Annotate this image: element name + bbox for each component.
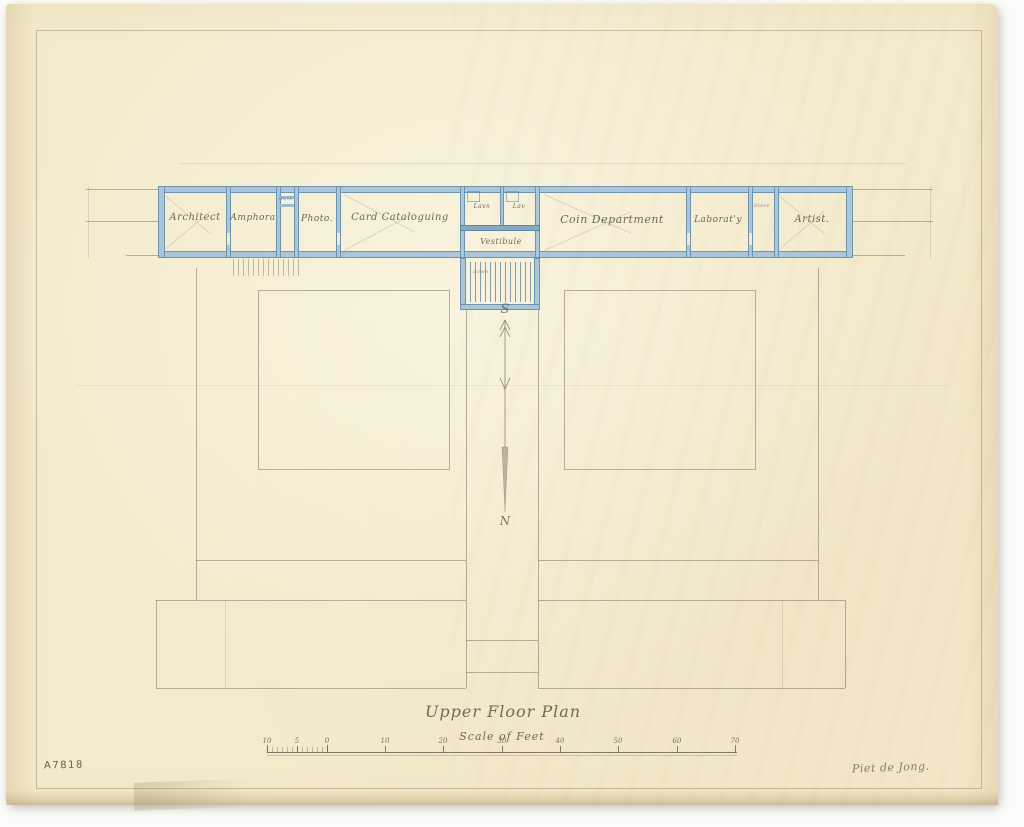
scale-tick xyxy=(267,745,268,753)
scale-tick xyxy=(443,746,444,753)
room-label-architect: Architect xyxy=(158,212,232,223)
lavatory-fixture xyxy=(467,191,480,202)
scale-tick xyxy=(560,746,561,753)
terrace-line xyxy=(225,600,226,688)
pencil-line xyxy=(86,221,158,222)
stair-hall-wall xyxy=(534,258,540,310)
door-opening xyxy=(749,233,752,245)
stair-hall-wall xyxy=(460,258,466,310)
scale-tick-label: 10 xyxy=(375,737,395,745)
scale-tick-label: 60 xyxy=(667,737,687,745)
corridor-wall-line xyxy=(466,310,467,688)
terrace-line xyxy=(845,600,846,688)
pencil-line xyxy=(126,255,158,256)
pencil-line xyxy=(180,163,906,164)
scale-tick-label: 70 xyxy=(725,737,745,745)
compass-north-label: N xyxy=(496,514,514,528)
pencil-line xyxy=(853,221,933,222)
wall-partition xyxy=(748,186,753,258)
door-opening xyxy=(687,233,690,245)
terrace-line xyxy=(156,600,157,688)
room-label-amphora: Amphora xyxy=(226,213,280,223)
scale-tick-label: 20 xyxy=(433,737,453,745)
lavatory-fixture xyxy=(506,191,519,202)
left-courtyard-outline xyxy=(258,290,450,470)
room-label-lavatory-1: Lavn xyxy=(462,203,502,210)
terrace-line xyxy=(156,600,466,601)
room-label-lavatory-2: Lav xyxy=(500,203,538,210)
compass-south-label: S xyxy=(496,302,514,317)
scale-tick xyxy=(385,746,386,753)
scale-tick xyxy=(735,745,736,753)
terrace-line xyxy=(538,688,845,689)
drawing-title: Upper Floor Plan xyxy=(403,702,603,721)
room-label-artist: Artist. xyxy=(777,214,847,225)
lavatory-wall xyxy=(460,225,540,231)
right-courtyard-outline xyxy=(564,290,756,470)
room-label-coin-department: Coin Department xyxy=(540,213,684,226)
door-opening xyxy=(337,233,340,245)
catalog-number: A7818 xyxy=(44,760,84,772)
corridor-cross-line xyxy=(466,640,538,641)
scale-tick xyxy=(618,746,619,753)
room-label-dark-room: dark xyxy=(276,196,296,202)
scale-tick-label: 5 xyxy=(287,737,307,745)
pencil-line xyxy=(88,186,89,258)
pencil-line xyxy=(853,189,933,190)
scale-tick-label: 40 xyxy=(550,737,570,745)
outer-wall-line xyxy=(196,268,197,600)
wall-partition xyxy=(460,186,465,258)
stair-down-label: down xyxy=(466,269,496,275)
artist-signature: Piet de Jong. xyxy=(852,760,930,776)
pencil-line xyxy=(930,186,931,258)
terrace-line xyxy=(782,600,783,688)
room-label-laboratory: Laborat'y xyxy=(688,215,748,225)
photograph-of-drawing: Architect Amphora dark Photo. Card Catal… xyxy=(0,0,1024,827)
pencil-line xyxy=(86,189,158,190)
scale-tick xyxy=(327,745,328,753)
outer-wall-line xyxy=(538,560,818,561)
stair-treads xyxy=(470,262,532,302)
scale-tick xyxy=(677,746,678,753)
exterior-stair-hatch xyxy=(233,259,299,276)
door-opening xyxy=(227,233,230,245)
room-label-vestibule: Vestibule xyxy=(462,237,540,246)
room-label-card-cataloguing: Card Cataloguing xyxy=(341,212,459,223)
scale-tick xyxy=(502,746,503,753)
shelf-bar xyxy=(279,204,294,207)
outer-wall-line xyxy=(196,560,466,561)
scale-tick-label: 0 xyxy=(317,737,337,745)
scale-tick-label: 30 xyxy=(492,737,512,745)
corridor-cross-line xyxy=(466,672,538,673)
wall-segment xyxy=(846,186,853,258)
terrace-line xyxy=(538,600,845,601)
room-label-store: Store xyxy=(748,203,776,209)
scale-tick xyxy=(297,746,298,753)
corridor-wall-line xyxy=(538,310,539,688)
scale-tick-label: 10 xyxy=(257,737,277,745)
terrace-line xyxy=(156,688,466,689)
room-label-photo: Photo. xyxy=(294,214,340,224)
scale-bar-line xyxy=(267,755,737,756)
compass-arrow-icon xyxy=(495,317,515,515)
pencil-line xyxy=(853,255,905,256)
outer-wall-line xyxy=(818,268,819,600)
scale-tick-label: 50 xyxy=(608,737,628,745)
